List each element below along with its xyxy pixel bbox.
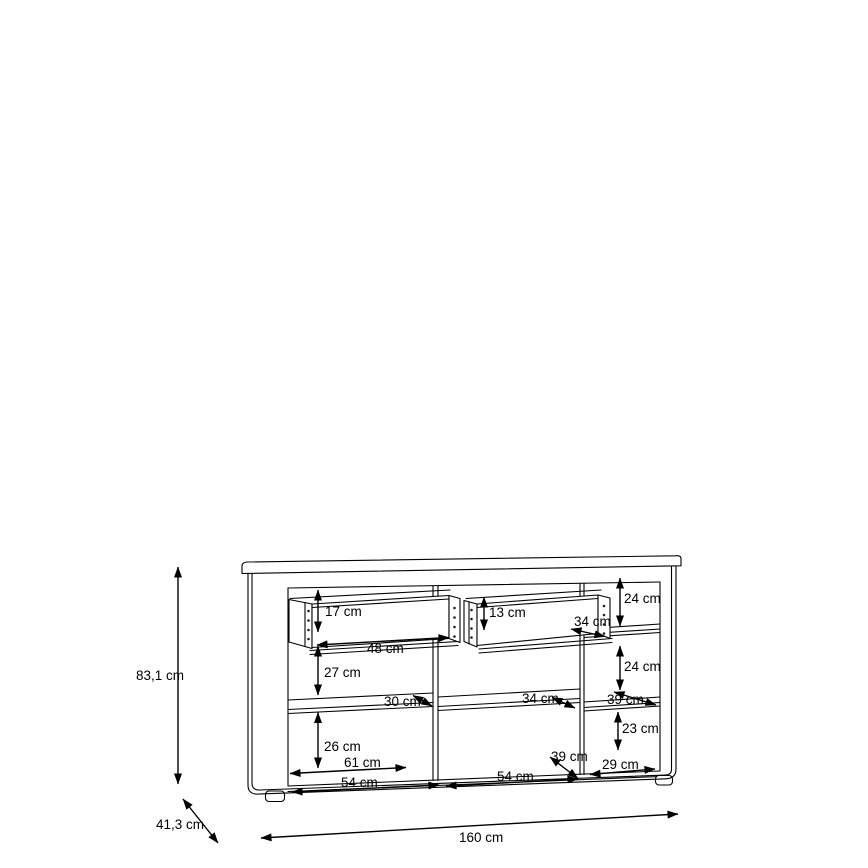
dimension-diagram-svg: 83,1 cm 41,3 cm 160 cm 17 cm 48 cm 27 cm… <box>0 0 868 868</box>
dim-drawer-left-height: 17 cm <box>325 604 362 619</box>
dim-left-shelf-depth: 30 cm <box>384 694 421 709</box>
left-foot <box>266 791 285 802</box>
dim-overall-height: 83,1 cm <box>136 668 184 683</box>
dim-right-mid-compartment-height: 24 cm <box>624 659 661 674</box>
dim-drawer-mid-height: 13 cm <box>489 605 526 620</box>
dim-left-lower-compartment-height: 26 cm <box>324 739 361 754</box>
dim-drawer-left-width: 48 cm <box>367 641 404 656</box>
dim-right-shelf-depth: 39 cm <box>607 692 644 707</box>
dim-left-compartment-width: 54 cm <box>341 775 378 790</box>
dim-mid-shelf-depth: 34 cm <box>522 691 559 706</box>
dim-right-lower-compartment-height: 23 cm <box>622 721 659 736</box>
dim-drawer-mid-width: 34 cm <box>574 614 611 629</box>
dim-overall-depth: 41,3 cm <box>156 817 204 832</box>
dim-right-top-compartment-height: 24 cm <box>624 591 661 606</box>
dim-left-upper-compartment-height: 27 cm <box>324 665 361 680</box>
top-panel <box>242 556 681 574</box>
dim-overall-width: 160 cm <box>459 830 503 845</box>
dim-mid-compartment-width: 54 cm <box>497 769 534 784</box>
dim-right-compartment-width: 29 cm <box>602 757 639 772</box>
furniture-dimension-diagram: 83,1 cm 41,3 cm 160 cm 17 cm 48 cm 27 cm… <box>0 0 868 868</box>
drawer-left-side-panel <box>289 600 312 649</box>
dim-mid-floor-depth: 39 cm <box>551 749 588 764</box>
drawer-left-side-panel <box>464 601 477 648</box>
interior-ceiling-line <box>288 582 660 588</box>
right-foot <box>656 776 673 786</box>
dim-left-shelf-width: 61 cm <box>344 755 381 770</box>
